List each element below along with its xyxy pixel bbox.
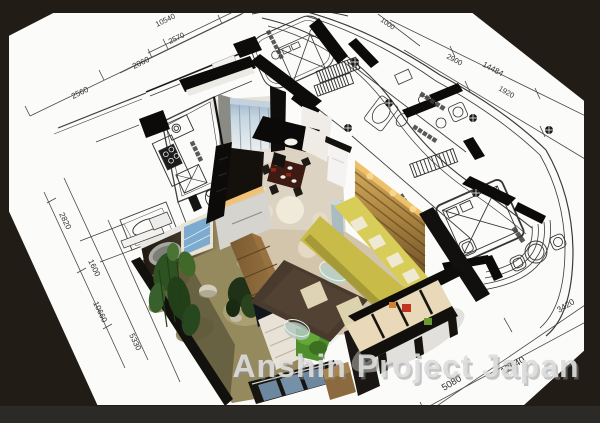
svg-text:Anshin Project Japan: Anshin Project Japan [232, 348, 579, 384]
